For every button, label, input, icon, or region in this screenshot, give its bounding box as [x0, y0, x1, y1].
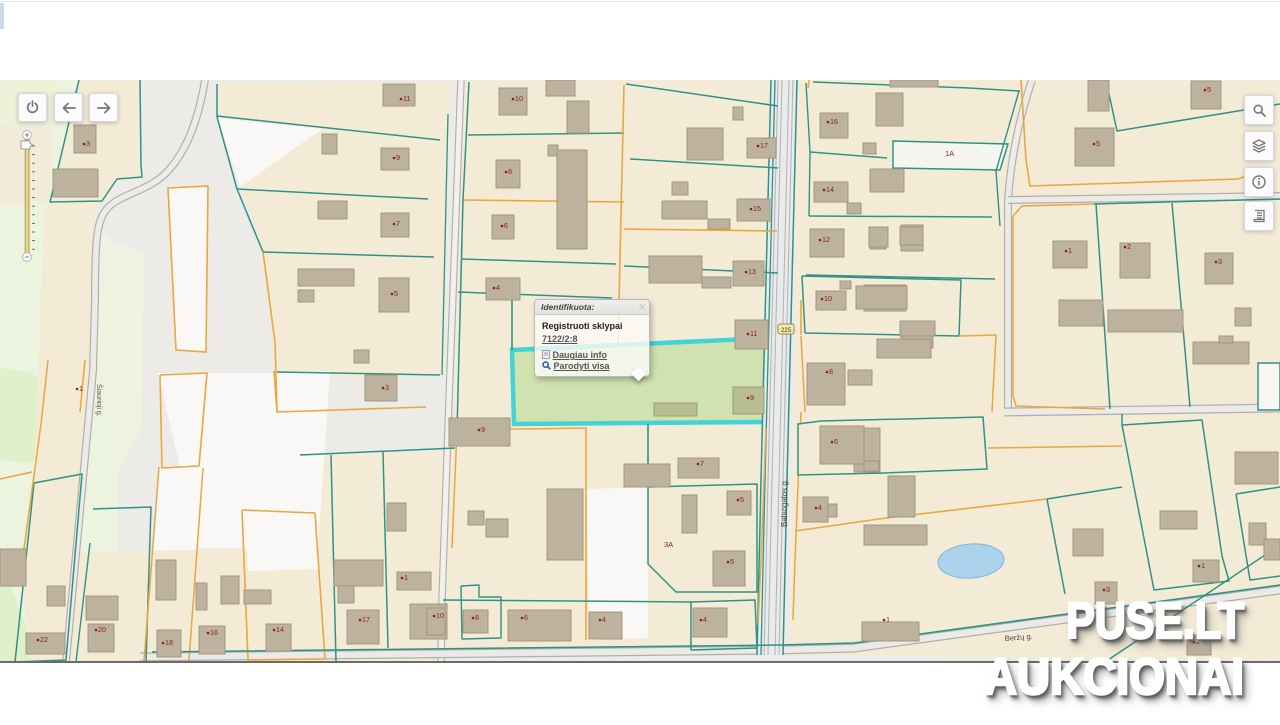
svg-text:16: 16 — [210, 628, 218, 637]
svg-text:22: 22 — [40, 635, 48, 644]
svg-text:5: 5 — [1207, 85, 1211, 94]
svg-text:1: 1 — [1201, 561, 1205, 570]
svg-text:4: 4 — [602, 615, 606, 624]
svg-text:1: 1 — [886, 615, 890, 624]
svg-text:15: 15 — [753, 204, 761, 213]
svg-text:6: 6 — [834, 437, 838, 446]
svg-text:5: 5 — [740, 495, 744, 504]
svg-text:16: 16 — [830, 117, 838, 126]
svg-text:3A: 3A — [664, 540, 673, 549]
svg-text:1: 1 — [1068, 246, 1072, 255]
svg-text:13: 13 — [748, 267, 756, 276]
svg-text:1A: 1A — [945, 149, 954, 158]
svg-text:8: 8 — [475, 613, 479, 622]
svg-text:17: 17 — [760, 141, 768, 150]
svg-text:14: 14 — [826, 185, 834, 194]
svg-text:1: 1 — [404, 573, 408, 582]
svg-text:1: 1 — [79, 384, 83, 393]
svg-text:9: 9 — [481, 425, 485, 434]
svg-text:3: 3 — [1218, 257, 1222, 266]
svg-text:10: 10 — [436, 611, 444, 620]
svg-text:17: 17 — [362, 615, 370, 624]
svg-text:4: 4 — [703, 615, 707, 624]
svg-text:6: 6 — [504, 221, 508, 230]
svg-text:5: 5 — [1096, 139, 1100, 148]
svg-text:3: 3 — [385, 383, 389, 392]
svg-text:9: 9 — [396, 153, 400, 162]
svg-text:4: 4 — [818, 503, 822, 512]
svg-text:11: 11 — [403, 94, 410, 103]
svg-text:5: 5 — [394, 289, 398, 298]
svg-text:4: 4 — [496, 283, 500, 292]
svg-text:10: 10 — [824, 294, 832, 303]
svg-text:3: 3 — [86, 139, 90, 148]
svg-text:8: 8 — [508, 167, 512, 176]
svg-text:2: 2 — [1127, 242, 1131, 251]
svg-text:10: 10 — [515, 94, 523, 103]
svg-text:12: 12 — [822, 235, 830, 244]
svg-text:Balsogalos g.: Balsogalos g. — [780, 479, 789, 527]
svg-text:11: 11 — [750, 329, 757, 338]
svg-text:9: 9 — [750, 393, 754, 402]
svg-text:8: 8 — [829, 367, 833, 376]
svg-text:7: 7 — [396, 219, 400, 228]
svg-text:225: 225 — [781, 327, 792, 334]
svg-text:6: 6 — [524, 613, 528, 622]
svg-text:14: 14 — [276, 625, 284, 634]
svg-text:5: 5 — [730, 557, 734, 566]
svg-text:18: 18 — [165, 638, 173, 647]
svg-text:7: 7 — [700, 459, 704, 468]
svg-text:Šiaurioji g.: Šiaurioji g. — [95, 384, 104, 417]
svg-text:20: 20 — [98, 625, 106, 634]
